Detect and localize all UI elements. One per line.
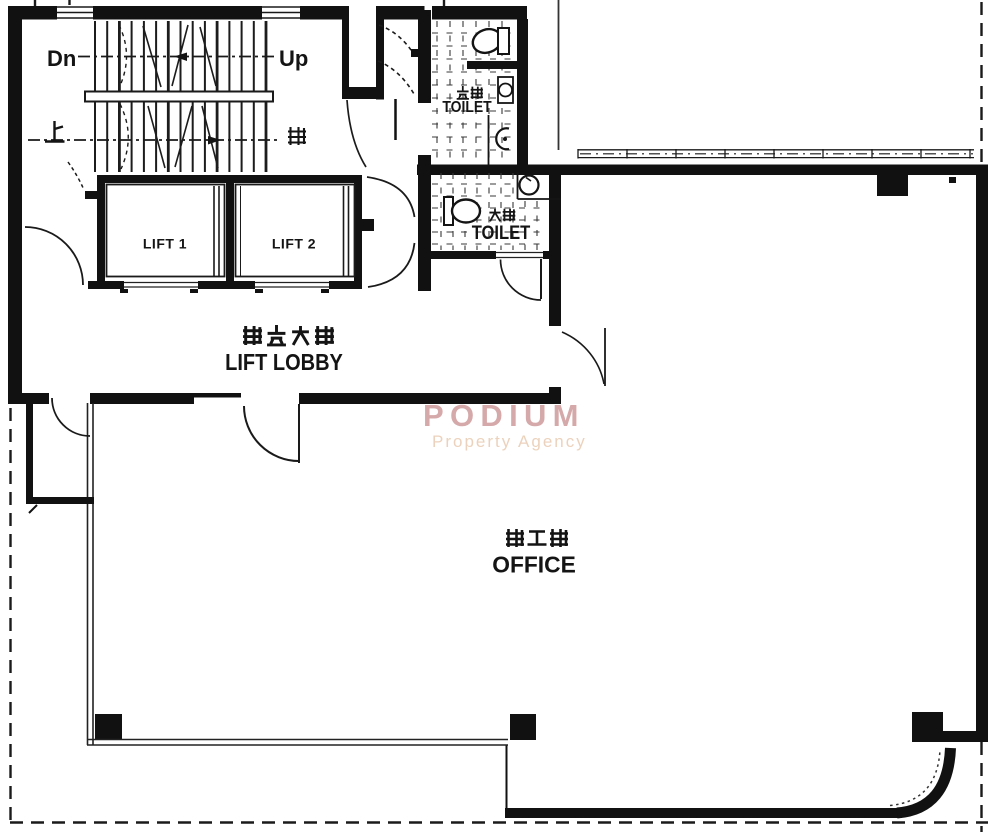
svg-text:LIFT 2: LIFT 2 <box>272 236 316 252</box>
svg-text:LIFT 1: LIFT 1 <box>143 236 187 252</box>
svg-text:TOILET: TOILET <box>472 222 531 244</box>
svg-text:Up: Up <box>279 46 308 71</box>
svg-text:OFFICE: OFFICE <box>492 551 576 577</box>
svg-text:Dn: Dn <box>47 46 76 71</box>
svg-text:TOILET: TOILET <box>442 99 491 116</box>
svg-text:Property Agency: Property Agency <box>432 432 587 451</box>
svg-text:LIFT LOBBY: LIFT LOBBY <box>225 349 343 376</box>
